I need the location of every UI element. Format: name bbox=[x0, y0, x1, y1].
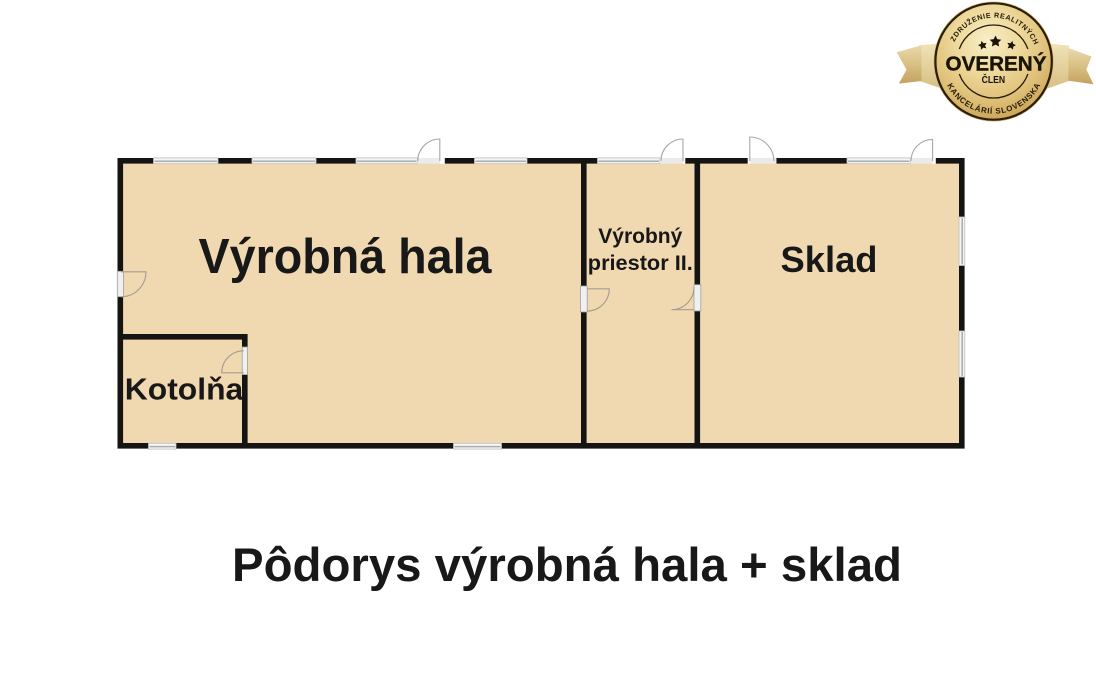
svg-text:Výrobná hala: Výrobná hala bbox=[199, 230, 493, 284]
svg-text:Pôdorys výrobná hala + sklad: Pôdorys výrobná hala + sklad bbox=[232, 538, 902, 591]
svg-text:priestor II.: priestor II. bbox=[588, 252, 693, 275]
svg-text:OVERENÝ: OVERENÝ bbox=[946, 52, 1048, 76]
svg-text:Kotolňa: Kotolňa bbox=[125, 371, 244, 406]
svg-text:Výrobný: Výrobný bbox=[598, 225, 682, 248]
svg-text:Sklad: Sklad bbox=[781, 239, 878, 280]
svg-text:ČLEN: ČLEN bbox=[982, 74, 1006, 86]
